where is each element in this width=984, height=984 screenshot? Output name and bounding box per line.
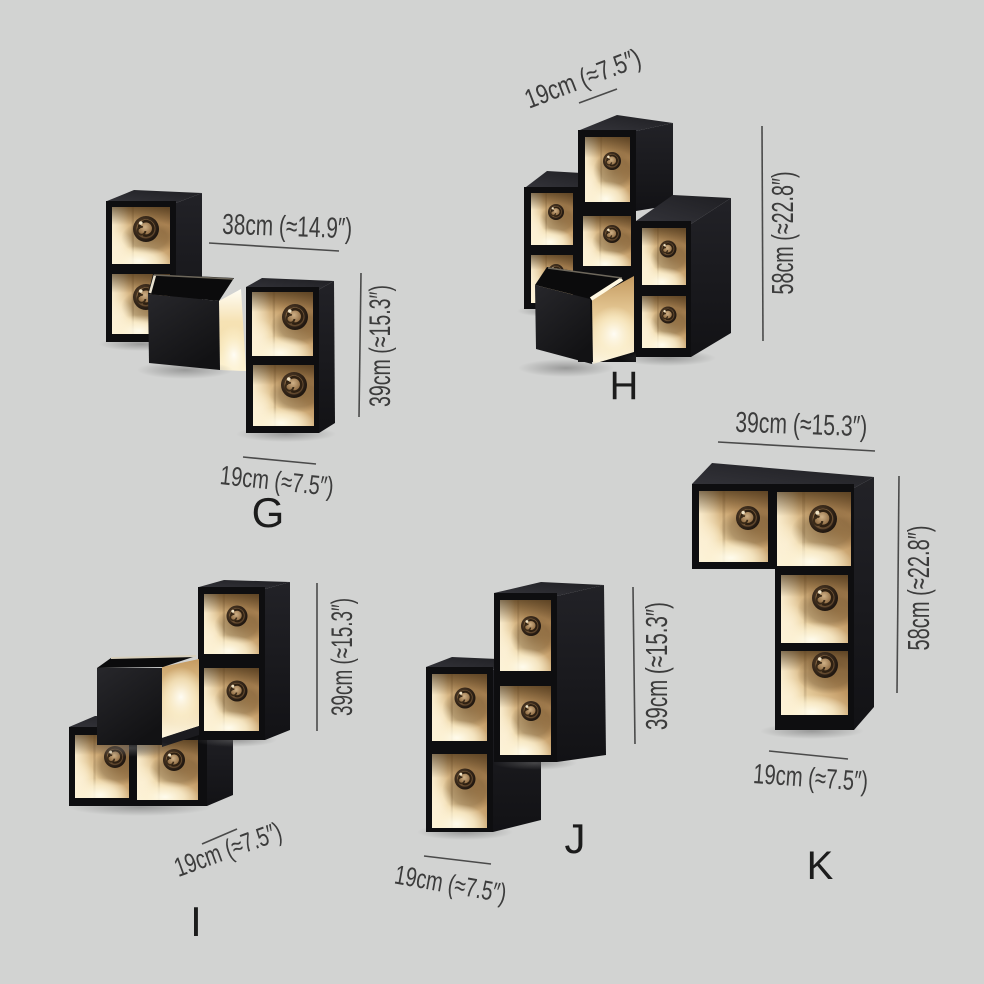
svg-text:G: G xyxy=(252,489,285,536)
svg-text:39cm (≈15.3″): 39cm (≈15.3″) xyxy=(735,407,868,444)
svg-text:39cm (≈15.3″): 39cm (≈15.3″) xyxy=(639,602,674,730)
svg-text:J: J xyxy=(565,815,586,862)
svg-text:58cm (≈22.8″): 58cm (≈22.8″) xyxy=(765,172,800,295)
svg-text:58cm (≈22.8″): 58cm (≈22.8″) xyxy=(901,526,936,651)
svg-text:38cm (≈14.9″): 38cm (≈14.9″) xyxy=(222,209,353,246)
svg-text:H: H xyxy=(610,364,639,408)
svg-text:39cm (≈15.3″): 39cm (≈15.3″) xyxy=(326,598,359,716)
svg-text:39cm (≈15.3″): 39cm (≈15.3″) xyxy=(364,285,397,407)
svg-text:K: K xyxy=(807,844,834,888)
svg-text:I: I xyxy=(190,898,202,945)
